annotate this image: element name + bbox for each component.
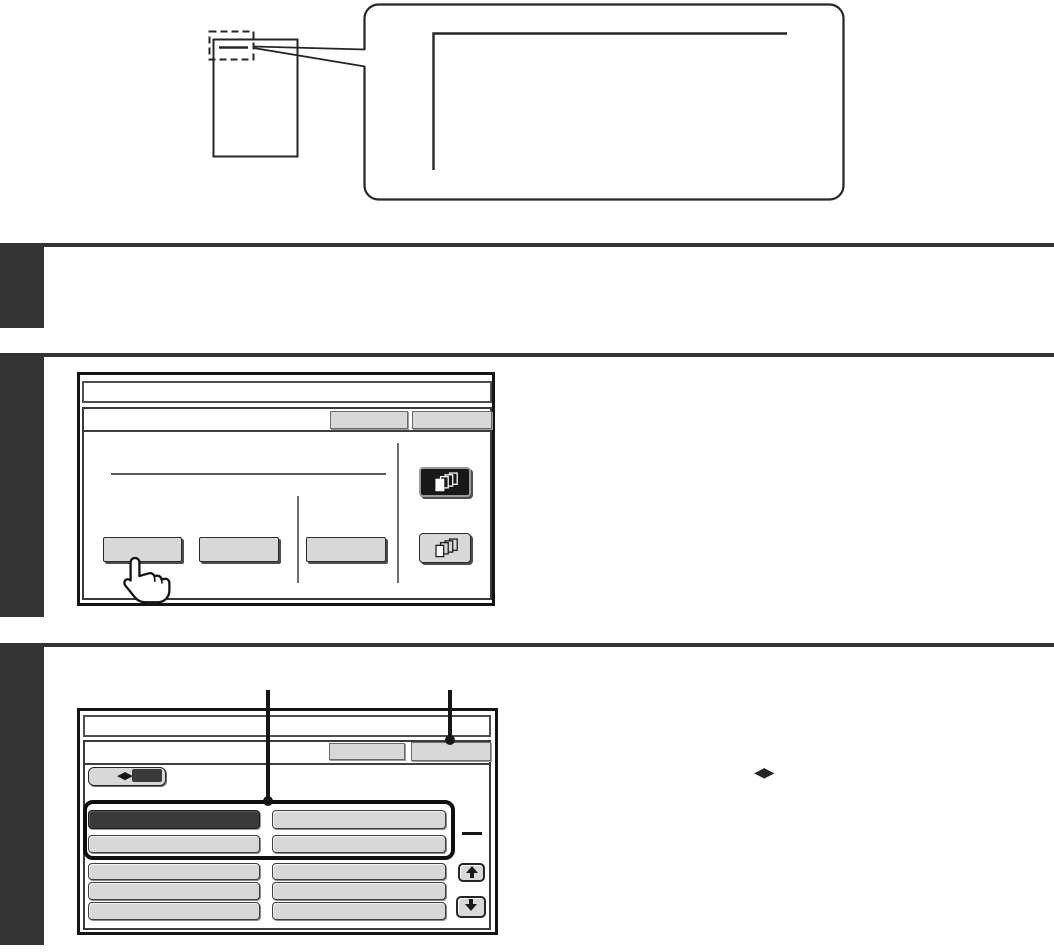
list-item-button[interactable]	[272, 902, 446, 920]
section-divider	[0, 643, 1054, 647]
annotation-dot	[445, 735, 455, 745]
list-item-button[interactable]	[88, 835, 260, 853]
screen1-action-button-2[interactable]	[199, 537, 279, 562]
screen2-panel: ◀▶	[83, 740, 491, 930]
annotation-dot	[263, 796, 273, 806]
list-item-button[interactable]	[88, 882, 260, 900]
screen2-list	[85, 742, 489, 928]
section-tab	[0, 643, 44, 945]
touch-screen-1	[77, 372, 495, 606]
screen1-top-button-1[interactable]	[330, 411, 408, 429]
page-outline	[214, 40, 298, 157]
vertical-divider	[297, 496, 299, 583]
pointing-hand-cursor	[123, 556, 177, 604]
list-item-button[interactable]	[272, 835, 446, 853]
manual-page: ◀▶ ◀▶	[0, 0, 1054, 952]
touch-screen-2: ◀▶	[77, 708, 498, 935]
section-tab	[0, 243, 44, 328]
section-divider	[0, 243, 1054, 247]
screen1-title-bar	[82, 381, 492, 403]
setting-underline	[111, 473, 386, 475]
list-item-button[interactable]	[88, 863, 260, 880]
vertical-divider	[397, 443, 399, 583]
scroll-position-dash	[462, 832, 482, 835]
callout-diagram	[0, 0, 1054, 240]
file-mode-button-1[interactable]	[419, 467, 471, 497]
list-item-button[interactable]	[88, 810, 260, 829]
section-divider	[0, 353, 1054, 357]
document-stack-icon	[432, 538, 459, 559]
left-right-arrows-icon: ◀▶	[754, 764, 774, 781]
callout-notch	[363, 50, 368, 66]
scroll-up-button[interactable]	[458, 863, 485, 882]
screen1-top-button-2[interactable]	[412, 411, 492, 429]
screen1-action-button-3[interactable]	[306, 537, 386, 562]
section-tab	[0, 353, 44, 617]
file-mode-button-2[interactable]	[419, 533, 471, 563]
list-item-button[interactable]	[272, 810, 446, 829]
up-arrow-icon	[466, 866, 478, 878]
separator-line	[84, 430, 490, 432]
scroll-down-button[interactable]	[456, 896, 486, 918]
document-stack-icon	[432, 472, 459, 493]
down-arrow-icon	[465, 899, 477, 911]
annotation-line	[266, 690, 270, 802]
list-item-button[interactable]	[272, 882, 446, 900]
list-item-button[interactable]	[88, 902, 260, 920]
screen2-title-bar	[83, 715, 491, 737]
list-item-button[interactable]	[272, 863, 446, 880]
